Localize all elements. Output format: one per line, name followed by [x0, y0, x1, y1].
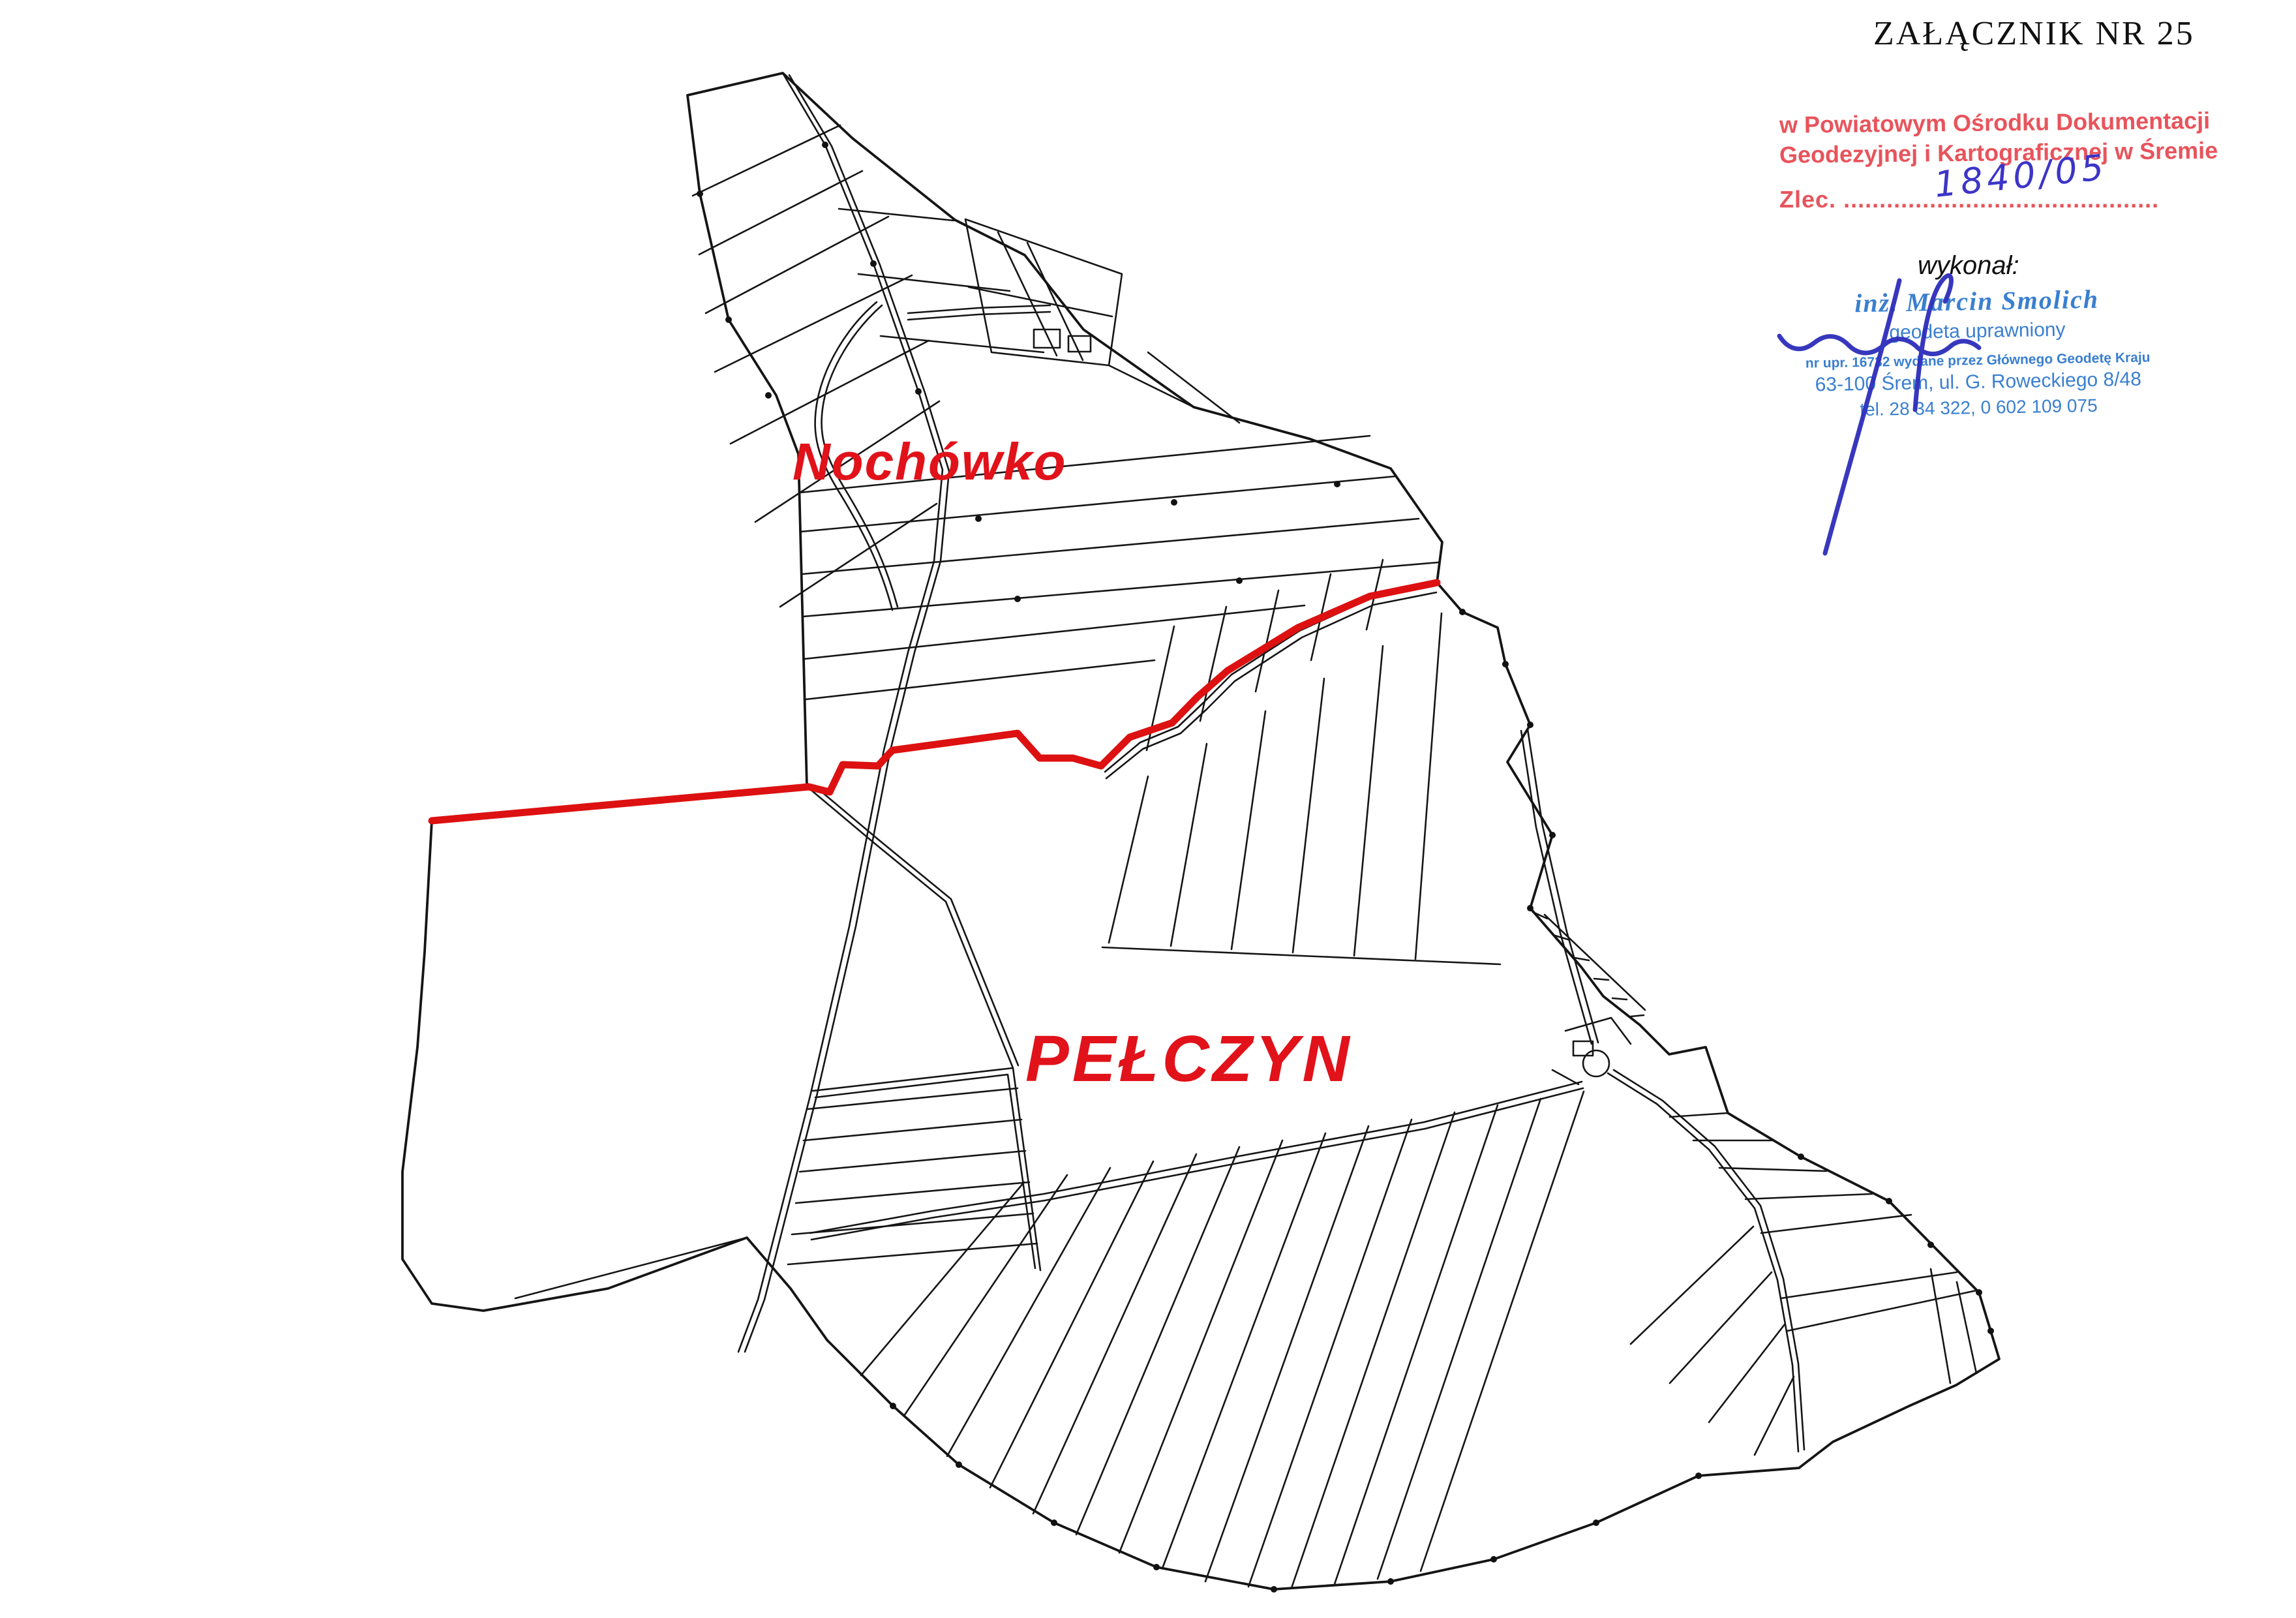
road-village-north — [1521, 729, 1598, 1044]
annex-title: ZAŁĄCZNIK NR 25 — [1873, 14, 2195, 53]
parcel-line-sw-bulge — [515, 1238, 747, 1298]
track-from-kink — [809, 786, 1018, 1068]
map-label-nochowko: Nochówko — [793, 432, 1066, 492]
road-under-red-line — [1105, 586, 1436, 778]
cadastral-map — [0, 0, 2296, 1618]
map-label-pelczyn: PEŁCZYN — [1025, 1022, 1353, 1097]
parcels-north-wedge-west — [693, 125, 939, 607]
parcels-tail-rungs — [1631, 1113, 1976, 1455]
road-tail — [1608, 1070, 1804, 1452]
village-cluster-nochowko — [965, 219, 1122, 365]
parcels-sw-hatch — [788, 1088, 1037, 1264]
village-center — [1552, 1018, 1631, 1084]
scanned-cadastral-sheet: Nochówko PEŁCZYN ZAŁĄCZNIK NR 25 w Powia… — [0, 0, 2296, 1618]
road-branch-north — [908, 305, 1050, 320]
registry-stamp-line1: w Powiatowym Ośrodku Dokumentacji — [1779, 105, 2249, 140]
track-sw-parcels — [813, 1068, 1040, 1270]
signature-ink — [1748, 261, 2074, 587]
parcels-north-wedge-east — [839, 209, 1239, 423]
registry-stamp-zlec-label: Zlec. — [1779, 186, 1836, 213]
red-boundary-line — [432, 583, 1437, 821]
parcels-east-ladder — [1533, 912, 1645, 1016]
parcels-mid-east — [1102, 613, 1500, 964]
